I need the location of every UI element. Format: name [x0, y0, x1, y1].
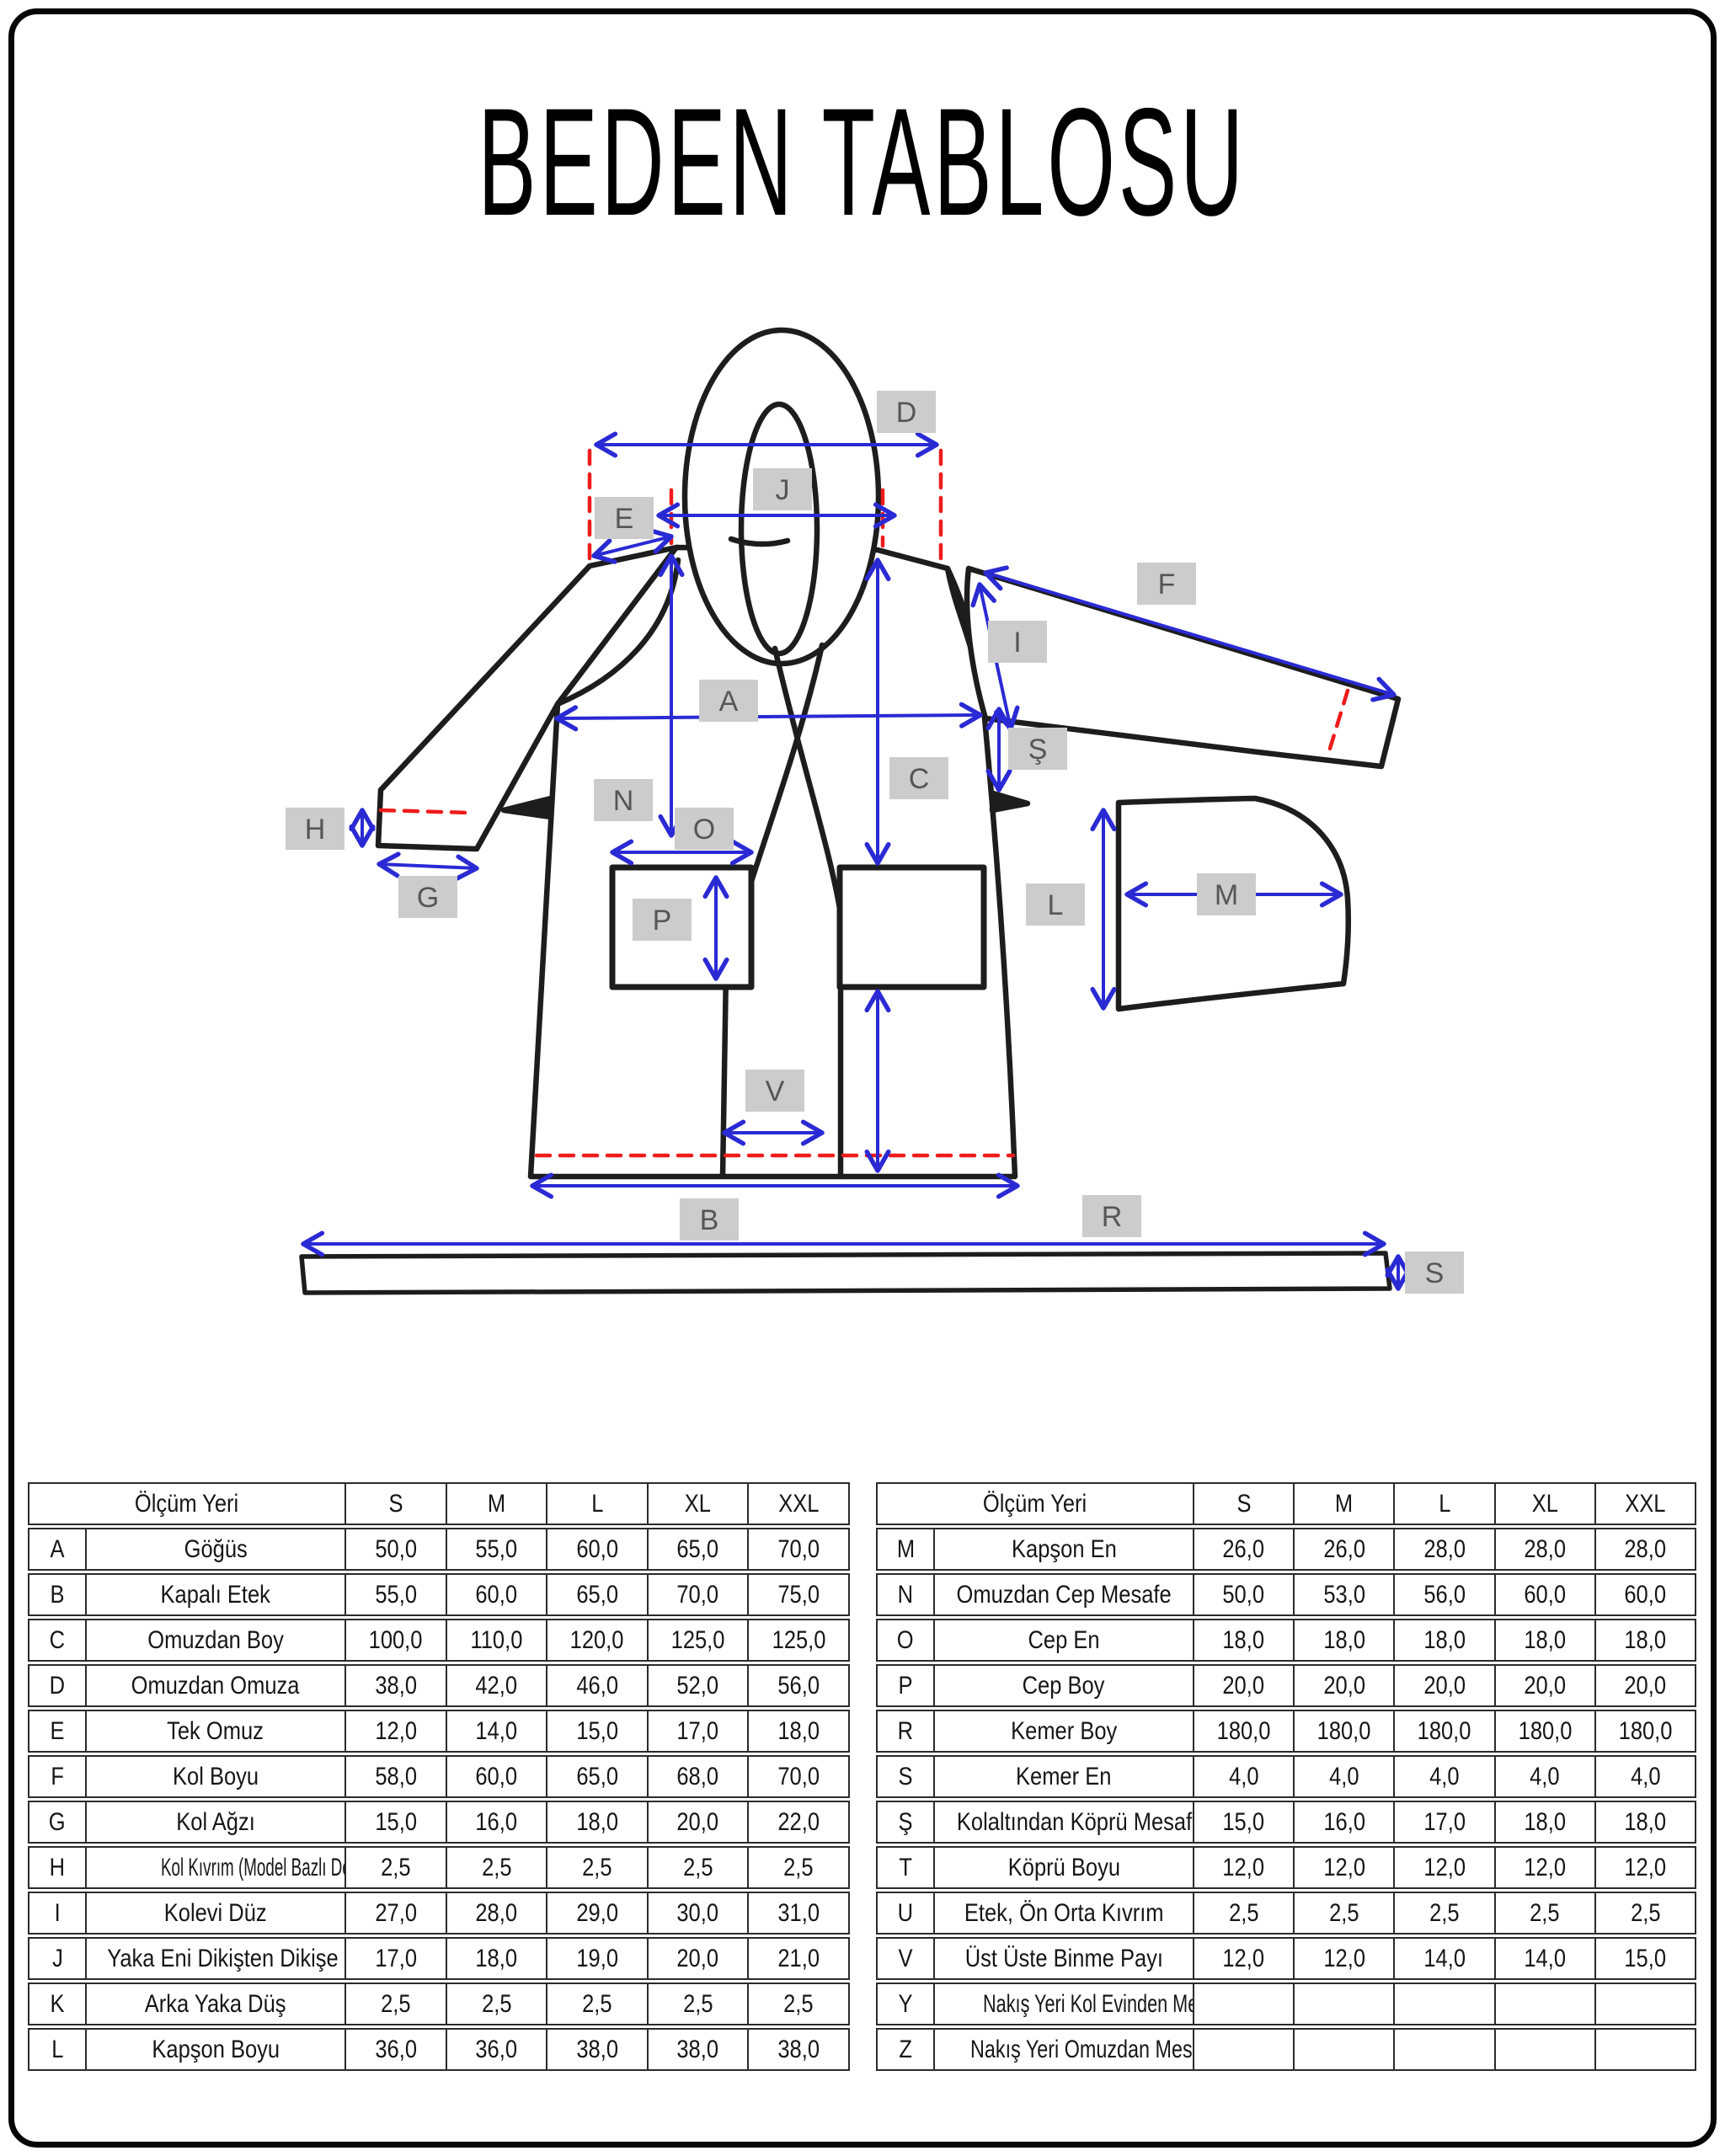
cell-text: L — [51, 2036, 63, 2064]
cell-text: 4,0 — [1329, 1763, 1359, 1791]
row-code: F — [28, 1755, 87, 1798]
cell-text: 20,0 — [1524, 1672, 1566, 1700]
col-header-size: M — [1295, 1482, 1395, 1525]
cell-text: 50,0 — [1223, 1581, 1265, 1609]
cell-text: 20,0 — [1223, 1672, 1265, 1700]
cell-text: 17,0 — [677, 1717, 719, 1746]
diagram-label-E: E — [595, 497, 654, 539]
table-row: BKapalı Etek55,060,065,070,075,0 — [28, 1573, 850, 1616]
row-value: 180,0 — [1295, 1710, 1395, 1753]
row-name: Kolaltından Köprü Mesafe — [935, 1801, 1194, 1844]
cell-text: Kapşon Boyu — [152, 2036, 280, 2064]
cell-text: 60,0 — [1524, 1581, 1566, 1609]
table-row: AGöğüs50,055,060,065,070,0 — [28, 1528, 850, 1571]
table-row: FKol Boyu58,060,065,068,070,0 — [28, 1755, 850, 1798]
row-code: Ş — [876, 1801, 935, 1844]
row-value: 27,0 — [346, 1892, 447, 1935]
table-row: UEtek, Ön Orta Kıvrım2,52,52,52,52,5 — [876, 1892, 1696, 1935]
row-value: 46,0 — [547, 1664, 649, 1707]
cell-text: 53,0 — [1323, 1581, 1365, 1609]
row-value: 20,0 — [649, 1937, 750, 1980]
row-value: 60,0 — [447, 1755, 548, 1798]
row-value: 2,5 — [346, 1983, 447, 2025]
cell-text: 2,5 — [381, 1990, 410, 2019]
row-code: Z — [876, 2028, 935, 2071]
table-row: IKolevi Düz27,028,029,030,031,0 — [28, 1892, 850, 1935]
cell-text: T — [899, 1854, 912, 1882]
cell-text: Etek, Ön Orta Kıvrım — [964, 1899, 1164, 1928]
diagram-label-N: N — [594, 779, 653, 821]
cell-text: 36,0 — [375, 2036, 417, 2064]
diagram-label-H: H — [286, 808, 344, 850]
row-value: 2,5 — [749, 1983, 850, 2025]
cell-text: 60,0 — [1625, 1581, 1667, 1609]
cell-text: 15,0 — [1625, 1945, 1667, 1973]
cell-text: Ölçüm Yeri — [983, 1490, 1087, 1518]
cell-text: M — [1335, 1490, 1353, 1518]
cell-text: L — [1439, 1490, 1450, 1518]
row-value: 75,0 — [749, 1573, 850, 1616]
cell-text: 55,0 — [375, 1581, 417, 1609]
row-value: 2,5 — [1194, 1892, 1295, 1935]
row-value: 52,0 — [649, 1664, 750, 1707]
cell-text: 2,5 — [582, 1854, 611, 1882]
cell-text: 14,0 — [476, 1717, 518, 1746]
row-name: Göğüs — [87, 1528, 346, 1571]
row-value: 70,0 — [649, 1573, 750, 1616]
row-value: 12,0 — [1295, 1937, 1395, 1980]
row-value: 4,0 — [1295, 1755, 1395, 1798]
cell-text: V — [898, 1945, 912, 1973]
row-value: 36,0 — [447, 2028, 548, 2071]
cell-text: Nakış Yeri Omuzdan Mesafe — [970, 2036, 1194, 2064]
row-value: 15,0 — [1596, 1937, 1696, 1980]
cell-text: 2,5 — [381, 1854, 410, 1882]
cell-text: Üst Üste Binme Payı — [964, 1945, 1162, 1973]
cell-text: Ölçüm Yeri — [135, 1490, 238, 1518]
row-value: 29,0 — [547, 1892, 649, 1935]
cell-text: 20,0 — [677, 1808, 719, 1837]
row-value: 110,0 — [447, 1619, 548, 1662]
row-code: P — [876, 1664, 935, 1707]
cell-text: Nakış Yeri Kol Evinden Mesafe — [983, 1990, 1194, 2019]
row-value — [1194, 1983, 1295, 2025]
row-value: 65,0 — [547, 1755, 649, 1798]
row-value: 17,0 — [346, 1937, 447, 1980]
row-value: 18,0 — [1395, 1619, 1495, 1662]
cell-text: 60,0 — [476, 1763, 518, 1791]
row-value: 12,0 — [346, 1710, 447, 1753]
row-value: 2,5 — [346, 1846, 447, 1889]
row-value: 31,0 — [749, 1892, 850, 1935]
col-header-size: XL — [649, 1482, 750, 1525]
row-name: Kemer Boy — [935, 1710, 1194, 1753]
cell-text: 180,0 — [1618, 1717, 1672, 1746]
cell-text: 16,0 — [1323, 1808, 1365, 1837]
cell-text: 2,5 — [1329, 1899, 1359, 1928]
cell-text: 180,0 — [1418, 1717, 1471, 1746]
row-value: 120,0 — [547, 1619, 649, 1662]
svg-text:E: E — [615, 503, 634, 535]
table-row: ETek Omuz12,014,015,017,018,0 — [28, 1710, 850, 1753]
svg-text:L: L — [1048, 889, 1064, 921]
table-row: PCep Boy20,020,020,020,020,0 — [876, 1664, 1696, 1707]
table-row: NOmuzdan Cep Mesafe50,053,056,060,060,0 — [876, 1573, 1696, 1616]
cell-text: Köprü Boyu — [1007, 1854, 1119, 1882]
cell-text: 2,5 — [582, 1990, 611, 2019]
cell-text: 4,0 — [1229, 1763, 1258, 1791]
cell-text: 22,0 — [777, 1808, 820, 1837]
row-value: 2,5 — [649, 1983, 750, 2025]
cell-text: Kolevi Düz — [164, 1899, 267, 1928]
cell-text: Kemer Boy — [1011, 1717, 1117, 1746]
row-value: 70,0 — [749, 1755, 850, 1798]
cell-text: 20,0 — [1625, 1672, 1667, 1700]
row-value: 2,5 — [547, 1846, 649, 1889]
row-value: 21,0 — [749, 1937, 850, 1980]
cell-text: Yaka Eni Dikişten Dikişe — [107, 1945, 338, 1973]
measurement-diagram: DJEFIAŞCNHGOPLMVBRS — [0, 269, 1725, 1474]
cell-text: 46,0 — [576, 1672, 618, 1700]
header-row: Ölçüm YeriSMLXLXXL — [876, 1482, 1696, 1525]
cell-text: 17,0 — [1423, 1808, 1466, 1837]
row-name: Tek Omuz — [87, 1710, 346, 1753]
cell-text: 55,0 — [476, 1535, 518, 1564]
svg-text:H: H — [305, 814, 326, 846]
row-value: 56,0 — [1395, 1573, 1495, 1616]
cell-text: L — [591, 1490, 603, 1518]
cell-text: S — [898, 1763, 912, 1791]
table-row: HKol Kıvrım (Model Bazlı Değişebilir)2,5… — [28, 1846, 850, 1889]
right-pocket — [840, 867, 984, 987]
row-value: 28,0 — [1496, 1528, 1596, 1571]
cell-text: 38,0 — [777, 2036, 820, 2064]
row-name: Etek, Ön Orta Kıvrım — [935, 1892, 1194, 1935]
table-row: SKemer En4,04,04,04,04,0 — [876, 1755, 1696, 1798]
cell-text: Omuzdan Boy — [147, 1626, 284, 1655]
row-code: H — [28, 1846, 87, 1889]
row-value: 70,0 — [749, 1528, 850, 1571]
cell-text: 125,0 — [772, 1626, 825, 1655]
row-value: 20,0 — [649, 1801, 750, 1844]
cell-text: XL — [685, 1490, 711, 1518]
table-row: GKol Ağzı15,016,018,020,022,0 — [28, 1801, 850, 1844]
cell-text: 65,0 — [576, 1581, 618, 1609]
cell-text: 28,0 — [1524, 1535, 1566, 1564]
cell-text: Z — [899, 2036, 912, 2064]
row-value: 28,0 — [1395, 1528, 1495, 1571]
cell-text: Kol Kıvrım (Model Bazlı Değişebilir) — [161, 1854, 346, 1882]
col-header-size: L — [1395, 1482, 1495, 1525]
cell-text: 2,5 — [1631, 1899, 1660, 1928]
row-value: 55,0 — [447, 1528, 548, 1571]
diagram-label-O: O — [675, 808, 734, 850]
row-value: 68,0 — [649, 1755, 750, 1798]
cell-text: 2,5 — [482, 1854, 511, 1882]
cell-text: B — [50, 1581, 64, 1609]
cell-text: 27,0 — [375, 1899, 417, 1928]
row-value: 65,0 — [649, 1528, 750, 1571]
cell-text: 70,0 — [777, 1535, 820, 1564]
row-value: 20,0 — [1596, 1664, 1696, 1707]
left-belt-loop — [504, 798, 551, 817]
cell-text: 30,0 — [677, 1899, 719, 1928]
table-row: YNakış Yeri Kol Evinden Mesafe — [876, 1983, 1696, 2025]
cell-text: 2,5 — [482, 1990, 511, 2019]
row-value: 12,0 — [1194, 1937, 1295, 1980]
cell-text: N — [898, 1581, 913, 1609]
cell-text: I — [54, 1899, 60, 1928]
cell-text: 18,0 — [1423, 1626, 1466, 1655]
row-name: Cep En — [935, 1619, 1194, 1662]
table-row: JYaka Eni Dikişten Dikişe17,018,019,020,… — [28, 1937, 850, 1980]
svg-text:D: D — [896, 397, 917, 429]
row-code: Y — [876, 1983, 935, 2025]
row-name: Kol Boyu — [87, 1755, 346, 1798]
cell-text: E — [50, 1717, 64, 1746]
cell-text: S — [1236, 1490, 1251, 1518]
cell-text: 180,0 — [1317, 1717, 1371, 1746]
diagram-label-F: F — [1137, 563, 1196, 605]
cell-text: 12,0 — [1625, 1854, 1667, 1882]
cell-text: 38,0 — [576, 2036, 618, 2064]
row-value: 12,0 — [1395, 1846, 1495, 1889]
cell-text: 28,0 — [476, 1899, 518, 1928]
row-value: 180,0 — [1395, 1710, 1495, 1753]
cell-text: M — [896, 1535, 914, 1564]
svg-text:J: J — [776, 474, 790, 506]
cell-text: 18,0 — [476, 1945, 518, 1973]
cell-text: 125,0 — [671, 1626, 725, 1655]
col-header-size: XL — [1496, 1482, 1596, 1525]
row-code: V — [876, 1937, 935, 1980]
cell-text: J — [52, 1945, 63, 1973]
cell-text: 12,0 — [1223, 1945, 1265, 1973]
svg-text:B: B — [700, 1204, 719, 1236]
row-value: 2,5 — [1496, 1892, 1596, 1935]
cell-text: 36,0 — [476, 2036, 518, 2064]
table-row: LKapşon Boyu36,036,038,038,038,0 — [28, 2028, 850, 2071]
row-code: S — [876, 1755, 935, 1798]
row-value: 19,0 — [547, 1937, 649, 1980]
row-value: 17,0 — [1395, 1801, 1495, 1844]
row-value: 38,0 — [346, 1664, 447, 1707]
row-value: 28,0 — [1596, 1528, 1696, 1571]
cell-text: 2,5 — [1429, 1899, 1459, 1928]
cell-text: 2,5 — [783, 1854, 813, 1882]
cell-text: Kolaltından Köprü Mesafe — [957, 1808, 1194, 1837]
row-value: 180,0 — [1596, 1710, 1696, 1753]
cell-text: 18,0 — [1524, 1626, 1566, 1655]
table-row: VÜst Üste Binme Payı12,012,014,014,015,0 — [876, 1937, 1696, 1980]
row-value: 14,0 — [1395, 1937, 1495, 1980]
cell-text: A — [50, 1535, 64, 1564]
row-name: Arka Yaka Düş — [87, 1983, 346, 2025]
row-value: 18,0 — [1496, 1619, 1596, 1662]
row-value: 20,0 — [1496, 1664, 1596, 1707]
svg-text:P: P — [653, 905, 672, 937]
cell-text: 38,0 — [677, 2036, 719, 2064]
row-value: 2,5 — [547, 1983, 649, 2025]
cell-text: 12,0 — [1323, 1945, 1365, 1973]
row-value: 18,0 — [447, 1937, 548, 1980]
cell-text: C — [50, 1626, 65, 1655]
diagram-label-S: S — [1405, 1251, 1464, 1294]
cell-text: Cep Boy — [1023, 1672, 1105, 1700]
cell-text: 18,0 — [1223, 1626, 1265, 1655]
row-value: 2,5 — [1295, 1892, 1395, 1935]
row-value: 60,0 — [547, 1528, 649, 1571]
cell-text: G — [49, 1808, 66, 1837]
cell-text: 56,0 — [777, 1672, 820, 1700]
row-name: Kol Kıvrım (Model Bazlı Değişebilir) — [87, 1846, 346, 1889]
cell-text: 68,0 — [677, 1763, 719, 1791]
col-header-size: M — [447, 1482, 548, 1525]
cell-text: 52,0 — [677, 1672, 719, 1700]
table-row: ŞKolaltından Köprü Mesafe15,016,017,018,… — [876, 1801, 1696, 1844]
cell-text: 60,0 — [476, 1581, 518, 1609]
row-value — [1395, 1983, 1495, 2025]
row-value: 55,0 — [346, 1573, 447, 1616]
row-value: 4,0 — [1496, 1755, 1596, 1798]
cell-text: 2,5 — [783, 1990, 813, 2019]
row-code: B — [28, 1573, 87, 1616]
row-value — [1596, 1983, 1696, 2025]
cell-text: 18,0 — [1625, 1808, 1667, 1837]
cell-text: 12,0 — [1223, 1854, 1265, 1882]
cell-text: 14,0 — [1423, 1945, 1466, 1973]
row-value: 60,0 — [1596, 1573, 1696, 1616]
cell-text: P — [898, 1672, 912, 1700]
row-name: Üst Üste Binme Payı — [935, 1937, 1194, 1980]
cell-text: 70,0 — [777, 1763, 820, 1791]
svg-text:Ş: Ş — [1028, 734, 1048, 766]
diagram-label-I: I — [988, 621, 1047, 663]
cell-text: O — [897, 1626, 914, 1655]
cell-text: 17,0 — [375, 1945, 417, 1973]
row-name: Omuzdan Boy — [87, 1619, 346, 1662]
row-value: 38,0 — [547, 2028, 649, 2071]
cell-text: Kol Ağzı — [176, 1808, 255, 1837]
cell-text: Ş — [898, 1808, 912, 1837]
row-code: N — [876, 1573, 935, 1616]
row-code: K — [28, 1983, 87, 2025]
row-value: 15,0 — [1194, 1801, 1295, 1844]
col-header-measure: Ölçüm Yeri — [876, 1482, 1194, 1525]
row-value: 12,0 — [1496, 1846, 1596, 1889]
diagram-label-R: R — [1082, 1195, 1141, 1237]
row-value — [1194, 2028, 1295, 2071]
cell-text: 18,0 — [1323, 1626, 1365, 1655]
cell-text: XL — [1532, 1490, 1558, 1518]
row-value: 2,5 — [649, 1846, 750, 1889]
row-value — [1395, 2028, 1495, 2071]
table-row: TKöprü Boyu12,012,012,012,012,0 — [876, 1846, 1696, 1889]
row-value — [1496, 2028, 1596, 2071]
cell-text: 2,5 — [1229, 1899, 1258, 1928]
row-value: 18,0 — [749, 1710, 850, 1753]
cell-text: M — [488, 1490, 505, 1518]
cell-text: 29,0 — [576, 1899, 618, 1928]
cell-text: Kol Boyu — [173, 1763, 259, 1791]
cell-text: 120,0 — [570, 1626, 624, 1655]
cell-text: 18,0 — [1524, 1808, 1566, 1837]
row-value: 60,0 — [447, 1573, 548, 1616]
svg-text:V: V — [766, 1075, 785, 1107]
cell-text: 110,0 — [470, 1626, 522, 1655]
row-name: Cep Boy — [935, 1664, 1194, 1707]
cell-text: 100,0 — [369, 1626, 423, 1655]
cell-text: 28,0 — [1625, 1535, 1667, 1564]
arrow-G — [379, 864, 477, 868]
row-value: 18,0 — [547, 1801, 649, 1844]
cell-text: 4,0 — [1429, 1763, 1459, 1791]
size-table-right: Ölçüm YeriSMLXLXXLMKapşon En26,026,028,0… — [876, 1480, 1696, 2073]
row-name: Omuzdan Omuza — [87, 1664, 346, 1707]
row-value: 38,0 — [749, 2028, 850, 2071]
cell-text: 65,0 — [677, 1535, 719, 1564]
row-value: 16,0 — [1295, 1801, 1395, 1844]
cell-text: 75,0 — [777, 1581, 820, 1609]
cell-text: 56,0 — [1423, 1581, 1466, 1609]
cell-text: 15,0 — [1223, 1808, 1265, 1837]
row-value: 2,5 — [447, 1983, 548, 2025]
row-value: 20,0 — [1194, 1664, 1295, 1707]
row-value: 4,0 — [1596, 1755, 1696, 1798]
row-value: 20,0 — [1395, 1664, 1495, 1707]
row-value: 125,0 — [749, 1619, 850, 1662]
col-header-measure: Ölçüm Yeri — [28, 1482, 346, 1525]
diagram-label-C: C — [889, 757, 948, 799]
cell-text: 58,0 — [375, 1763, 417, 1791]
row-value: 56,0 — [749, 1664, 850, 1707]
cell-text: 18,0 — [777, 1717, 820, 1746]
row-value: 4,0 — [1194, 1755, 1295, 1798]
row-code: M — [876, 1528, 935, 1571]
cell-text: 31,0 — [777, 1899, 820, 1928]
cell-text: 4,0 — [1631, 1763, 1660, 1791]
table-row: MKapşon En26,026,028,028,028,0 — [876, 1528, 1696, 1571]
row-value: 180,0 — [1496, 1710, 1596, 1753]
row-value: 17,0 — [649, 1710, 750, 1753]
header-row: Ölçüm YeriSMLXLXXL — [28, 1482, 850, 1525]
row-name: Omuzdan Cep Mesafe — [935, 1573, 1194, 1616]
svg-text:F: F — [1158, 568, 1176, 600]
diagram-label-M: M — [1197, 873, 1256, 915]
row-code: I — [28, 1892, 87, 1935]
row-name: Köprü Boyu — [935, 1846, 1194, 1889]
cell-text: F — [51, 1763, 64, 1791]
row-code: C — [28, 1619, 87, 1662]
diagram-label-G: G — [398, 876, 457, 918]
row-code: G — [28, 1801, 87, 1844]
page-title-text: BEDEN TABLOSU — [478, 77, 1247, 246]
row-code: O — [876, 1619, 935, 1662]
col-header-size: L — [547, 1482, 649, 1525]
cell-text: 12,0 — [1323, 1854, 1365, 1882]
cell-text: 12,0 — [375, 1717, 417, 1746]
row-name: Nakış Yeri Kol Evinden Mesafe — [935, 1983, 1194, 2025]
row-value: 12,0 — [1194, 1846, 1295, 1889]
cell-text: 20,0 — [1323, 1672, 1365, 1700]
row-code: A — [28, 1528, 87, 1571]
cell-text: Omuzdan Omuza — [131, 1672, 300, 1700]
col-header-size: S — [346, 1482, 447, 1525]
cell-text: 60,0 — [576, 1535, 618, 1564]
row-value — [1295, 2028, 1395, 2071]
size-table-left: Ölçüm YeriSMLXLXXLAGöğüs50,055,060,065,0… — [28, 1480, 850, 2073]
row-name: Yaka Eni Dikişten Dikişe — [87, 1937, 346, 1980]
